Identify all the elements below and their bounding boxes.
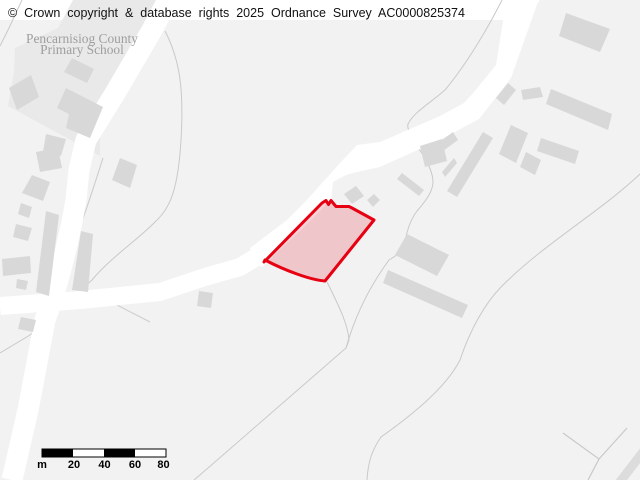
svg-text:Primary School: Primary School bbox=[40, 42, 124, 57]
svg-text:20: 20 bbox=[68, 459, 80, 471]
svg-text:© Crown copyright & database r: © Crown copyright & database rights 2025… bbox=[8, 6, 465, 20]
svg-text:m: m bbox=[37, 459, 47, 471]
svg-text:80: 80 bbox=[157, 459, 169, 471]
svg-text:60: 60 bbox=[129, 459, 141, 471]
svg-text:40: 40 bbox=[98, 459, 110, 471]
